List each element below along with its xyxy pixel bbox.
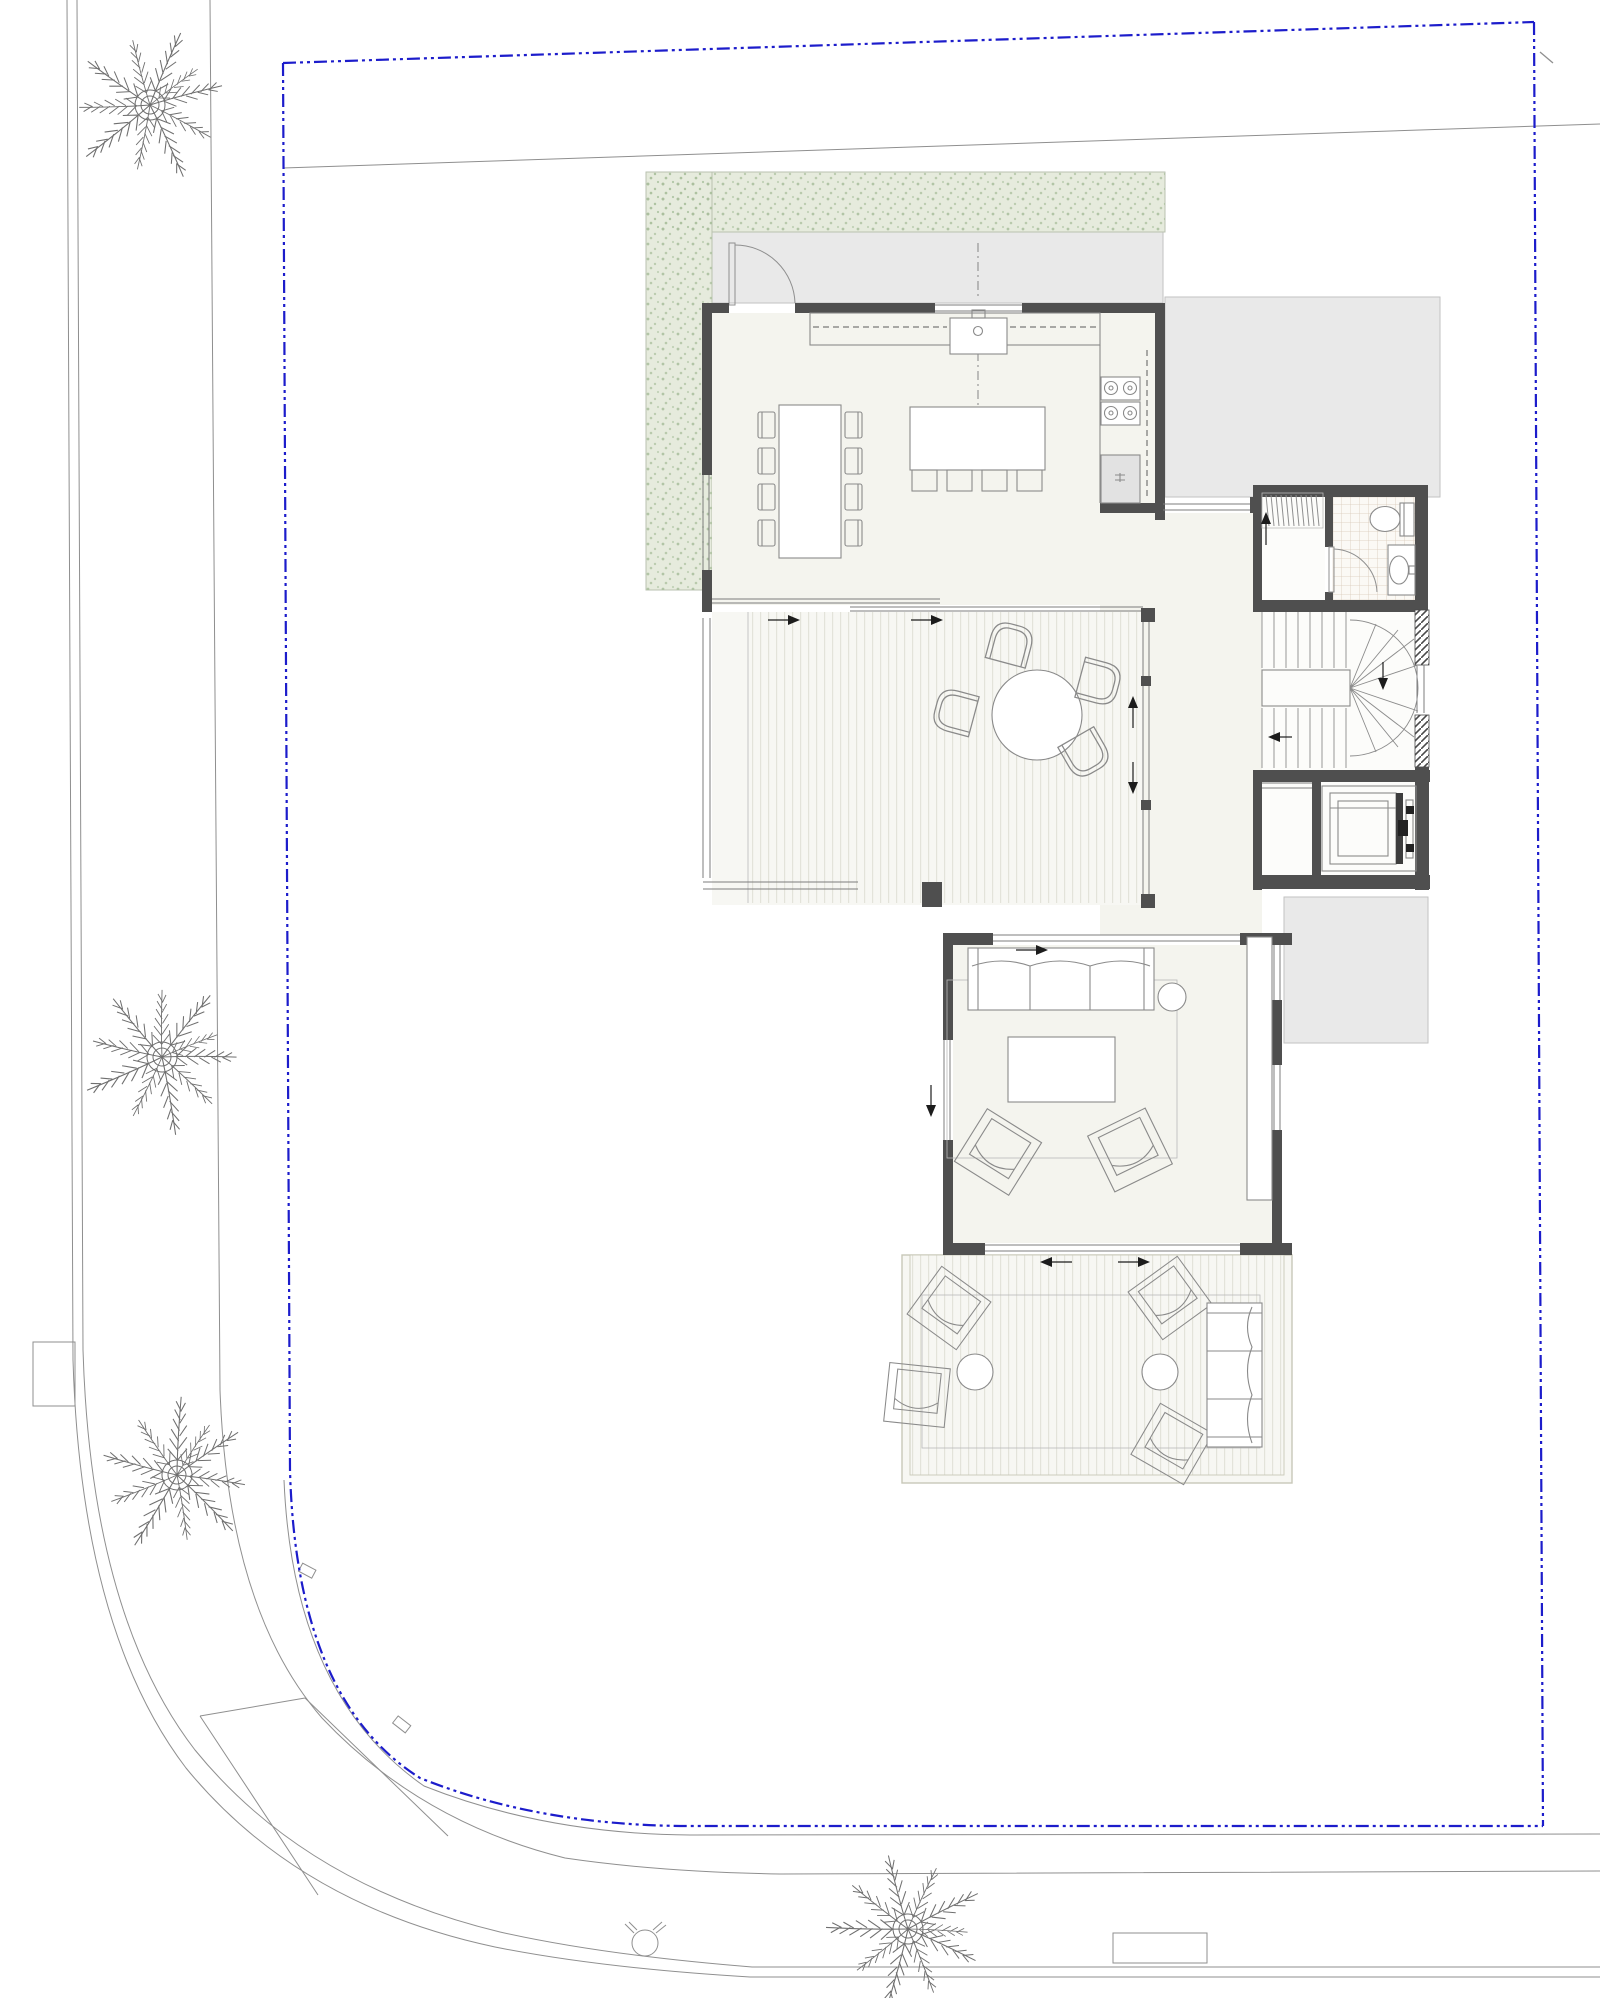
- side-yard-north-east: [1165, 297, 1440, 497]
- terrace-side-table-2: [1142, 1354, 1178, 1390]
- sidewalk-back-line: [284, 1480, 1600, 1835]
- elevator-lobby-floor: [1262, 782, 1312, 875]
- corner-apron-lines: [200, 1698, 448, 1895]
- patio-west-window: [703, 618, 710, 878]
- palm-nw: [78, 31, 224, 181]
- survey-line: [283, 124, 1600, 168]
- sofa-3-seat: [968, 948, 1154, 1010]
- palm-s: [804, 1826, 1012, 1998]
- patio-round-table: [992, 670, 1082, 760]
- walk-joint-2: [393, 1716, 411, 1733]
- coffee-table: [1008, 1037, 1115, 1102]
- closet-floor: [1262, 497, 1325, 600]
- round-side-table: [1158, 983, 1186, 1011]
- refrigerator: [1101, 455, 1140, 503]
- wing-north-glass: [1163, 504, 1250, 510]
- boundary-corner-tick: [1540, 52, 1553, 63]
- sideboard: [1247, 937, 1272, 1200]
- hatched-wall-1: [1415, 610, 1429, 665]
- palm-sw: [84, 1380, 273, 1571]
- living-south-slider: [985, 1245, 1240, 1251]
- palm-w-mid: [73, 967, 253, 1150]
- floor-plan-drawing: [0, 0, 1600, 1998]
- stair-floor: [1262, 612, 1415, 770]
- living-east-window-1: [1274, 945, 1280, 1000]
- washbasin: [1388, 545, 1415, 595]
- patio-decking: [748, 612, 1143, 903]
- valve-symbol: [625, 1922, 666, 1956]
- site-plan-page: [0, 0, 1600, 1998]
- outdoor-sofa: [1207, 1303, 1262, 1447]
- terrace-side-table-1: [957, 1354, 993, 1390]
- utility-pad-west: [33, 1342, 75, 1406]
- side-yard-east: [1284, 897, 1428, 1043]
- utility-box-south: [1113, 1933, 1207, 1963]
- elevator-door-motor: [1398, 820, 1408, 836]
- hatched-wall-2: [1415, 715, 1429, 767]
- living-west-down-arrow: [926, 1085, 936, 1117]
- living-north-slider: [993, 935, 1240, 941]
- living-east-window-2: [1274, 1065, 1280, 1130]
